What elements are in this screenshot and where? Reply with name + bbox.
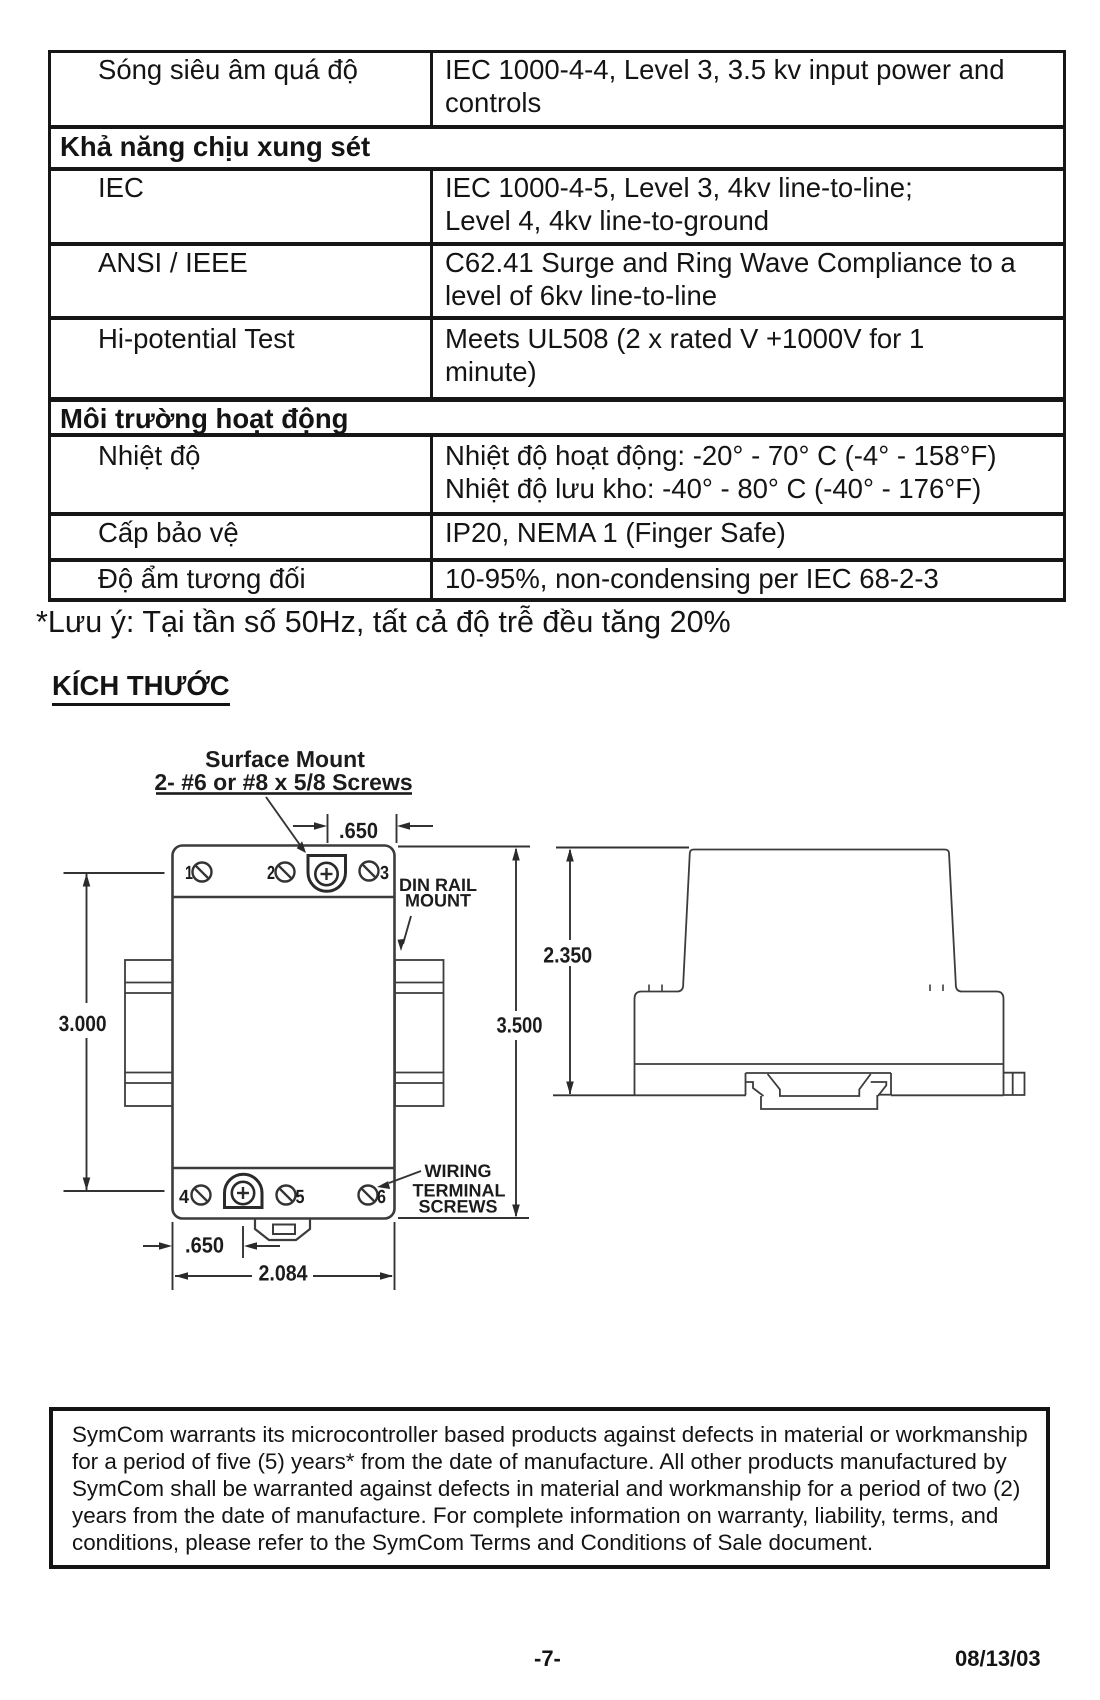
svg-text:SCREWS: SCREWS bbox=[418, 1197, 497, 1217]
svg-text:MOUNT: MOUNT bbox=[405, 891, 471, 911]
svg-text:2.350: 2.350 bbox=[543, 943, 592, 968]
svg-text:.650: .650 bbox=[339, 818, 378, 843]
svg-text:4: 4 bbox=[179, 1187, 189, 1208]
svg-text:.650: .650 bbox=[185, 1233, 224, 1258]
svg-text:3.000: 3.000 bbox=[59, 1011, 107, 1036]
svg-text:3: 3 bbox=[380, 863, 389, 884]
svg-text:6: 6 bbox=[377, 1187, 386, 1208]
svg-text:5: 5 bbox=[296, 1187, 305, 1208]
svg-text:2: 2 bbox=[267, 863, 275, 884]
svg-text:3.500: 3.500 bbox=[497, 1013, 543, 1038]
svg-text:WIRING: WIRING bbox=[425, 1161, 492, 1181]
svg-text:1: 1 bbox=[185, 863, 193, 884]
svg-text:2- #6 or #8 x 5/8 Screws: 2- #6 or #8 x 5/8 Screws bbox=[154, 769, 412, 795]
svg-text:2.084: 2.084 bbox=[259, 1261, 309, 1286]
